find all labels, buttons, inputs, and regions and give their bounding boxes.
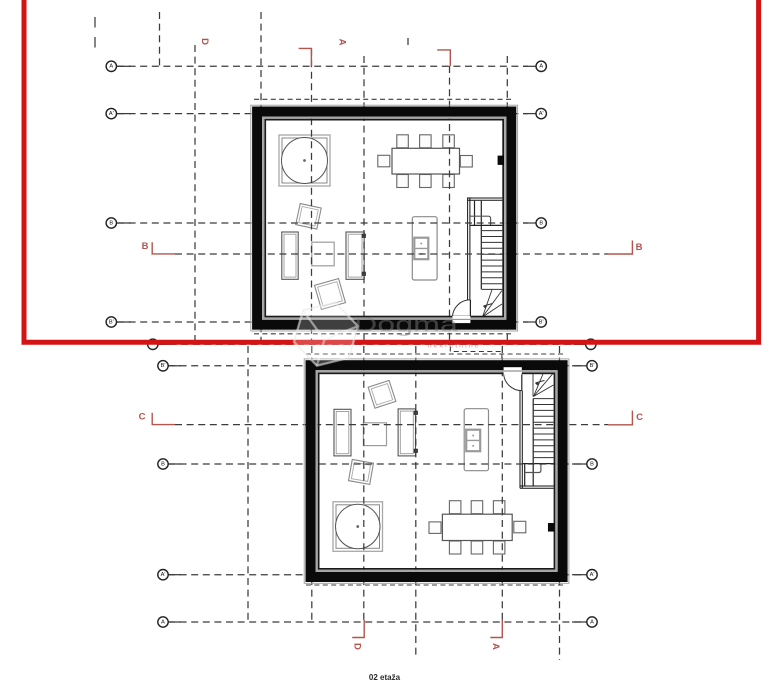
svg-text:A: A [590,619,594,625]
svg-text:C: C [139,412,146,423]
svg-text:nekretnine: nekretnine [427,341,480,350]
svg-text:A': A' [539,111,544,117]
svg-text:B: B [539,220,543,226]
svg-text:B': B' [590,363,595,369]
svg-text:B': B' [539,319,544,325]
svg-text:B: B [109,220,113,226]
svg-text:A: A [490,643,501,650]
svg-text:A: A [161,619,165,625]
svg-text:C: C [636,412,643,423]
svg-text:A: A [337,39,348,46]
svg-text:B: B [590,461,594,467]
svg-text:D: D [351,643,362,650]
svg-text:Dogma: Dogma [354,312,459,336]
svg-text:B: B [142,241,149,252]
svg-text:B': B' [161,363,166,369]
svg-text:A': A' [109,111,114,117]
svg-text:02 etaža: 02 etaža [369,673,401,682]
svg-text:D: D [199,38,210,45]
svg-text:B: B [161,461,165,467]
svg-text:A: A [109,64,113,70]
svg-text:A': A' [161,572,166,578]
svg-text:B: B [636,242,643,253]
svg-text:A': A' [590,572,595,578]
svg-text:B': B' [109,319,114,325]
svg-text:A: A [539,64,543,70]
